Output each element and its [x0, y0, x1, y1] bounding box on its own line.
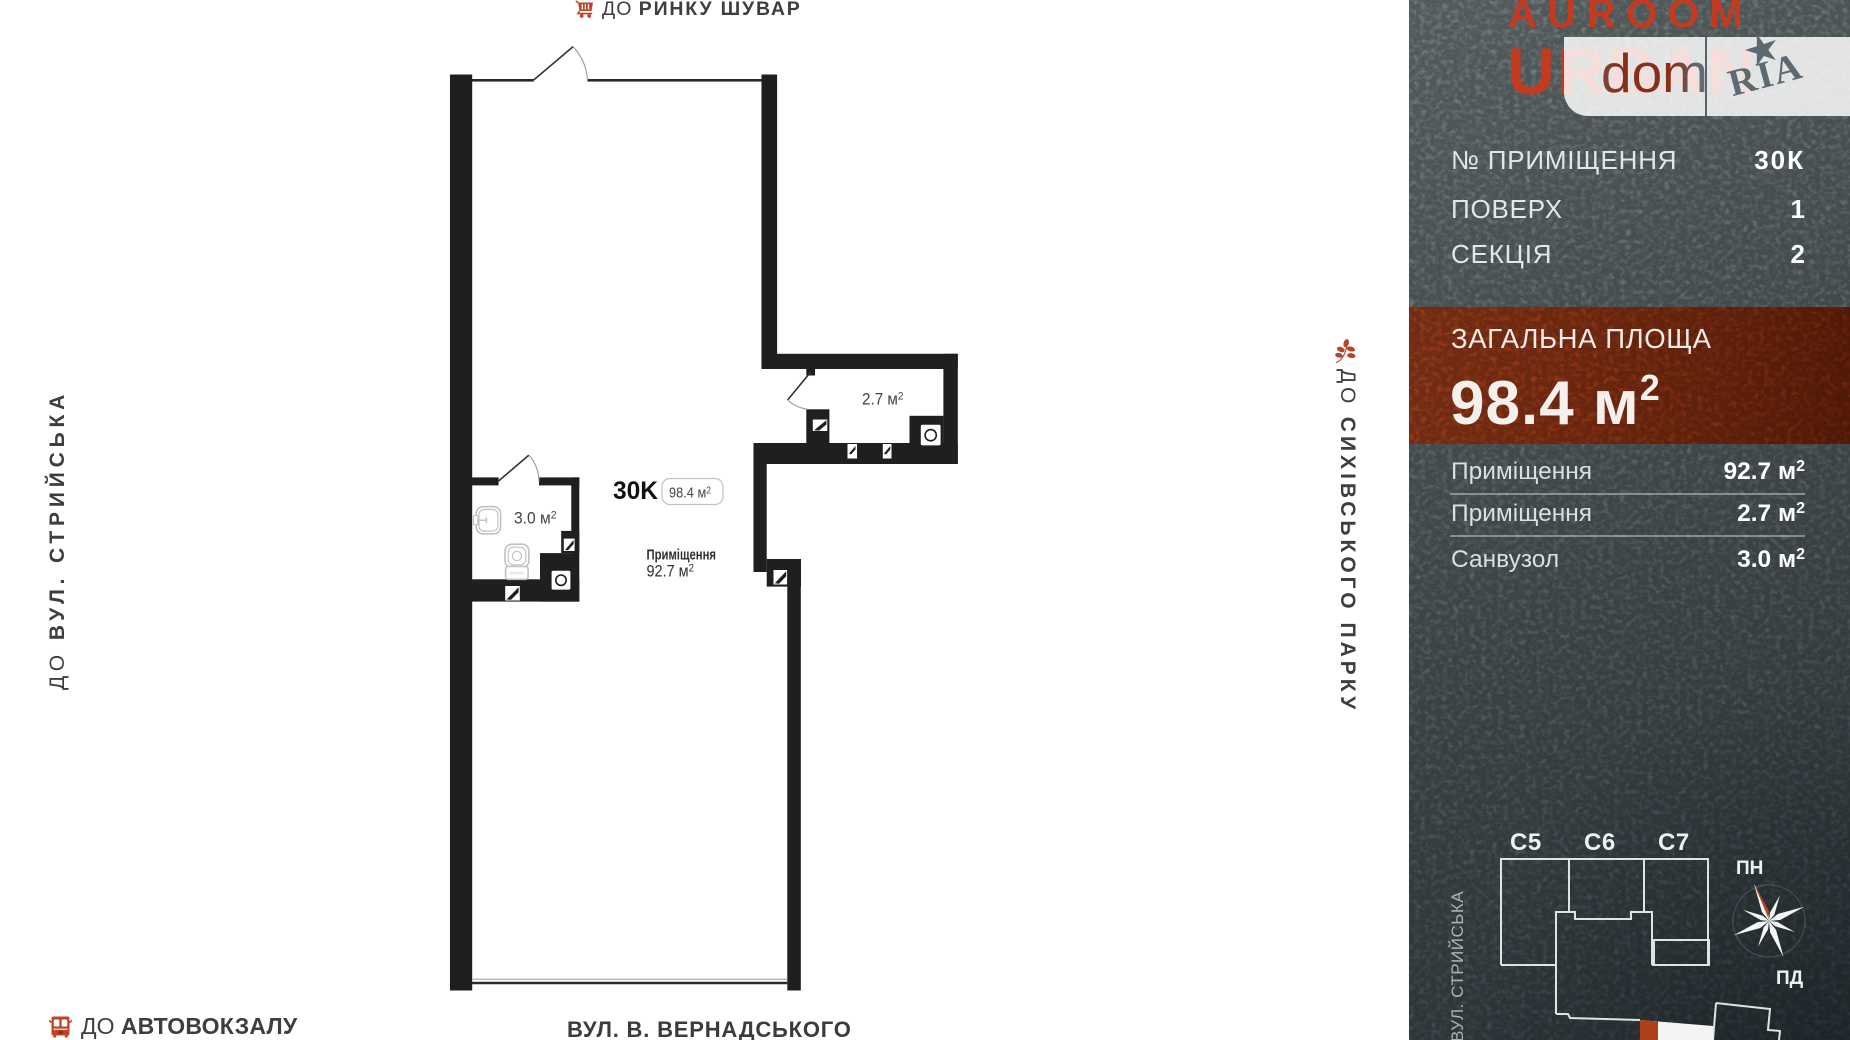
svg-text:Приміщення: Приміщення	[647, 548, 717, 564]
svg-text:ПН: ПН	[1736, 858, 1763, 879]
svg-text:С5: С5	[1510, 829, 1542, 856]
svg-text:30K: 30K	[613, 477, 658, 505]
svg-text:3.0 м2: 3.0 м2	[514, 510, 557, 528]
svg-text:С7: С7	[1658, 829, 1690, 856]
svg-text:98.4 м2: 98.4 м2	[669, 485, 711, 502]
svg-text:2.7 м2: 2.7 м2	[862, 391, 904, 409]
svg-text:ПД: ПД	[1776, 968, 1804, 989]
svg-text:С6: С6	[1584, 829, 1616, 856]
svg-text:92.7 м2: 92.7 м2	[647, 563, 695, 581]
